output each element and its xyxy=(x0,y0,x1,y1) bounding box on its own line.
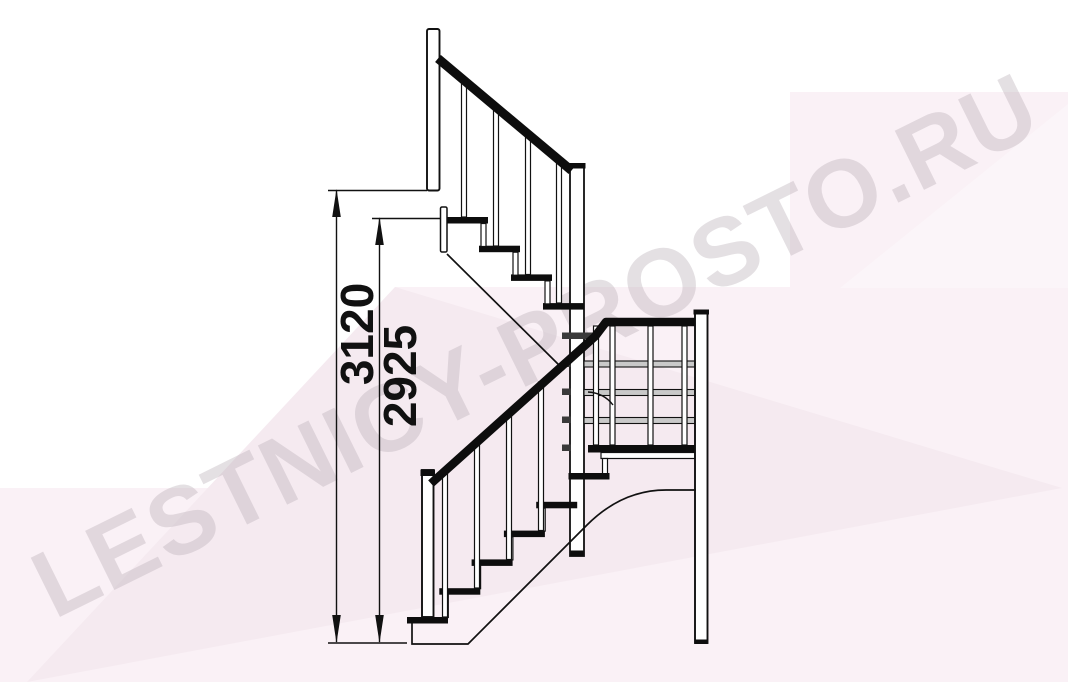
tread-riser-connector xyxy=(481,224,486,247)
arrowhead-down-2925 xyxy=(375,615,384,643)
winder-baluster xyxy=(682,326,687,445)
staircase-drawing xyxy=(0,0,1068,682)
far-post-foot xyxy=(695,640,708,645)
lower-baluster xyxy=(507,412,512,560)
lower-baluster xyxy=(475,441,480,588)
lower-flight-stringer xyxy=(412,490,696,644)
winder-baluster xyxy=(610,326,615,445)
winder-back-rail xyxy=(584,361,695,367)
winder-rail-end-tab xyxy=(562,445,571,452)
winder-platform-board xyxy=(601,453,695,459)
floor-mount-bracket xyxy=(441,207,448,252)
bottom-newel-post xyxy=(422,470,434,617)
winder-rail-end-tab xyxy=(562,417,571,424)
winder-structure xyxy=(562,163,709,644)
upper-flight xyxy=(427,29,584,310)
top-newel-post xyxy=(427,29,440,191)
winder-baluster xyxy=(648,326,653,445)
arrowhead-down-3120 xyxy=(332,615,341,643)
tread-riser-connector xyxy=(545,281,550,304)
winder-riser-support xyxy=(603,459,608,475)
upper-tread xyxy=(447,217,488,224)
upper-baluster xyxy=(494,108,499,246)
upper-flight-stringer xyxy=(447,254,564,370)
staircase-drawing-page: LESTNICY-PROSTO.RU xyxy=(0,0,1068,682)
winder-baluster xyxy=(594,326,599,445)
lower-handrail xyxy=(431,322,696,484)
central-post-foot xyxy=(571,551,584,557)
far-support-post xyxy=(695,312,708,643)
dimension-label-2925: 2925 xyxy=(373,325,427,427)
lower-tread xyxy=(407,617,448,624)
upper-baluster xyxy=(462,81,467,217)
winder-back-rail xyxy=(584,418,695,424)
bottom-newel-cap xyxy=(421,470,436,477)
lower-baluster xyxy=(443,471,448,617)
tread-riser-connector xyxy=(513,252,518,275)
lower-baluster xyxy=(539,382,544,531)
winder-rail-end-tab xyxy=(562,389,571,396)
upper-handrail xyxy=(438,59,572,171)
lower-tread xyxy=(569,473,610,480)
upper-baluster xyxy=(526,135,531,275)
arrowhead-up-2925 xyxy=(375,217,384,245)
arrowhead-up-3120 xyxy=(332,189,341,217)
far-post-cap xyxy=(694,310,710,315)
winder-platform-edge xyxy=(588,445,708,453)
upper-baluster xyxy=(557,161,562,303)
